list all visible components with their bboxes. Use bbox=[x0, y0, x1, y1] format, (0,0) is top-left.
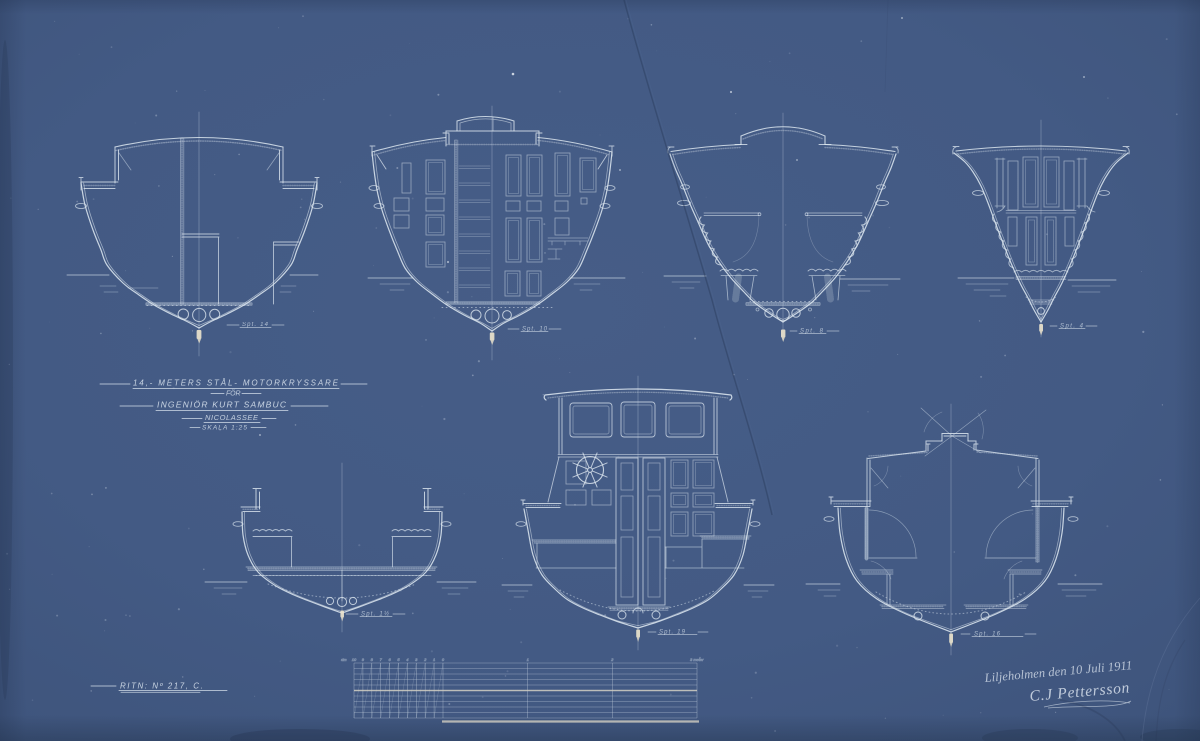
svg-text:Spt. 8: Spt. 8 bbox=[800, 329, 824, 335]
svg-text:FÖR: FÖR bbox=[226, 390, 241, 398]
svg-text:Spt. 4: Spt. 4 bbox=[1060, 324, 1084, 330]
svg-text:1: 1 bbox=[527, 657, 529, 662]
svg-text:Spt. 10: Spt. 10 bbox=[522, 327, 548, 333]
svg-text:3 meter: 3 meter bbox=[690, 657, 704, 662]
svg-text:INGENIÖR KURT SAMBUC: INGENIÖR KURT SAMBUC bbox=[157, 400, 287, 410]
svg-text:RITN: Nº 217, C.: RITN: Nº 217, C. bbox=[120, 682, 204, 691]
svg-text:dm: dm bbox=[341, 657, 347, 662]
svg-text:Spt. 16: Spt. 16 bbox=[974, 632, 1001, 638]
svg-text:Spt. 14: Spt. 14 bbox=[242, 322, 269, 328]
svg-text:10: 10 bbox=[352, 657, 357, 662]
svg-text:1: 1 bbox=[433, 657, 435, 662]
svg-text:NICOLASSEE: NICOLASSEE bbox=[205, 413, 259, 422]
svg-text:SKALA 1:25: SKALA 1:25 bbox=[202, 425, 248, 432]
svg-text:14,- METERS STÅL- MOTORKRYSSAR: 14,- METERS STÅL- MOTORKRYSSARE bbox=[133, 379, 339, 388]
svg-text:Spt. 19: Spt. 19 bbox=[659, 630, 686, 636]
